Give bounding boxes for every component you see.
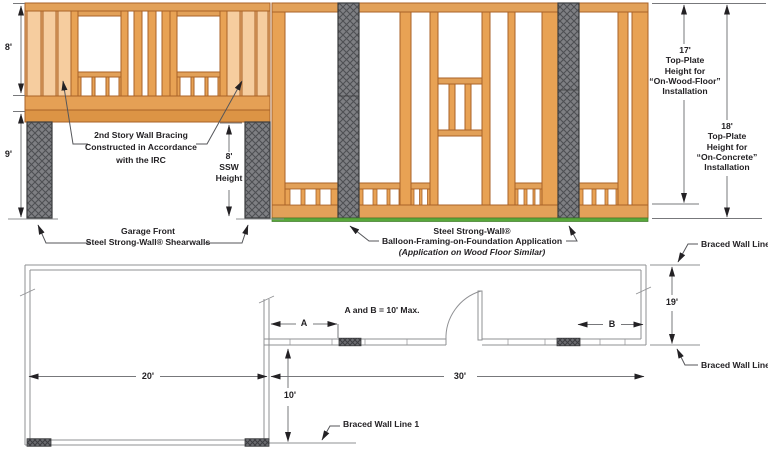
- balloon-ssw-left-panel: [338, 3, 359, 218]
- foundation-sill: [272, 218, 648, 222]
- second-story-bracing-note: 2nd Story Wall Bracing Constructed in Ac…: [85, 129, 197, 166]
- dim-10ft-label: 10': [284, 390, 296, 400]
- floor-band: [25, 96, 270, 110]
- ssw-height-label: 8' SSW Height: [216, 151, 243, 184]
- garage-ssw-right-panel: [245, 122, 270, 218]
- second-story-window-left: [71, 11, 128, 96]
- dim-b-label: B: [609, 319, 616, 329]
- braced-wall-line-label: Braced Wall Line: [701, 239, 768, 249]
- dim-17ft-wood-floor-label: 17' Top-Plate Height for “On-Wood-Floor”…: [649, 45, 720, 96]
- framing-diagram: 8' 9' 8' SSW Height 2nd Story Wall Braci…: [0, 0, 768, 449]
- garage-front-label: Garage Front Steel Strong-Wall® Shearwal…: [86, 226, 210, 249]
- dim-a-label: A: [301, 318, 308, 328]
- dim-18ft-concrete-label: 18' Top-Plate Height for “On-Concrete” I…: [697, 121, 758, 172]
- braced-wall-line-1-label: Braced Wall Line 1: [343, 419, 419, 429]
- garage-ssw-left-panel: [27, 122, 52, 218]
- balloon-ssw-right-panel: [558, 3, 579, 218]
- plan-ssw-panel: [557, 338, 580, 346]
- dim-8ft-label: 8': [0, 42, 17, 52]
- plan-ssw-panel: [339, 338, 361, 346]
- plan-ssw-panel: [27, 439, 51, 447]
- balloon-framed-wall-elevation: [272, 3, 648, 222]
- balloon-framing-label: Steel Strong-Wall® Balloon-Framing-on-Fo…: [382, 226, 562, 257]
- dim-20ft-label: 20': [142, 371, 154, 381]
- braced-wall-line-2-label: Braced Wall Line 2: [701, 360, 768, 370]
- dim-19ft-label: 19': [666, 297, 678, 307]
- dim-30ft-label: 30': [454, 371, 466, 381]
- garage-front-elevation: [25, 3, 270, 218]
- second-story-window-right: [170, 11, 227, 96]
- door-swing: [446, 291, 482, 340]
- plan-dimensions: [29, 267, 672, 442]
- dim-9ft-label: 9': [0, 149, 17, 159]
- plan-ssw-panel: [245, 439, 269, 447]
- ab-max-note: A and B = 10' Max.: [344, 305, 419, 315]
